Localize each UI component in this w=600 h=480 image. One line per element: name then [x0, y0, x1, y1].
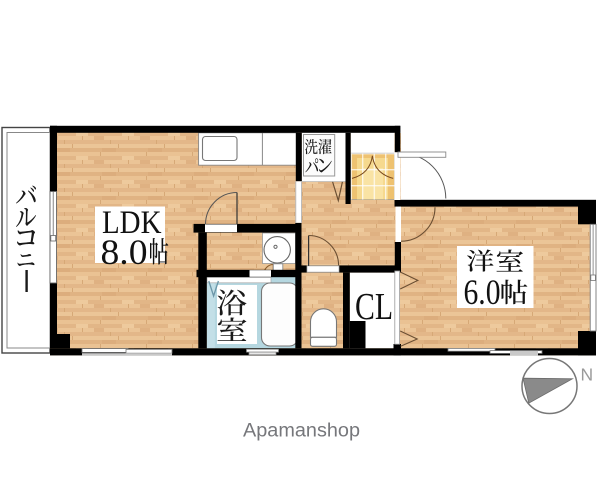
svg-text:N: N [581, 365, 594, 385]
svg-text:8.0: 8.0 [101, 232, 148, 272]
svg-text:6.0: 6.0 [464, 272, 501, 312]
svg-text:Apamanshop: Apamanshop [243, 419, 360, 441]
